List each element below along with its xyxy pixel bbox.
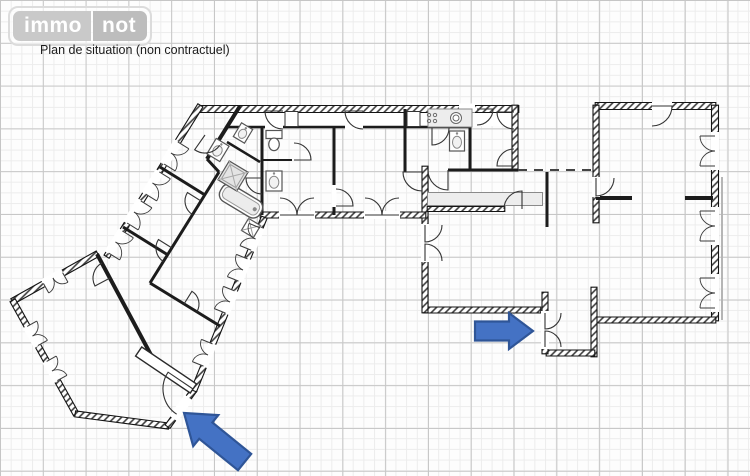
interior-wall	[97, 254, 158, 368]
door-swing	[403, 172, 422, 191]
door-swing	[294, 143, 311, 160]
interior-wall	[150, 283, 220, 326]
wc-fixture	[266, 131, 282, 151]
exterior-wall	[423, 307, 541, 313]
door-swing	[432, 128, 449, 145]
bathtub-fixture	[216, 181, 265, 221]
immonot-logo: immonot	[8, 6, 152, 46]
exterior-wall	[546, 350, 595, 356]
sink-fixture	[450, 131, 465, 151]
interior-wall	[150, 172, 219, 283]
floorplan-drawing	[0, 0, 750, 476]
exterior-wall	[512, 105, 518, 171]
interior-wall	[207, 159, 219, 172]
exterior-wall	[591, 287, 597, 357]
logo-immo-text: immo	[13, 11, 91, 41]
door-swing	[246, 178, 262, 194]
exterior-wall	[10, 299, 79, 416]
sink-fixture	[207, 138, 229, 161]
plan-fixtures	[136, 109, 543, 393]
doorleaf-fixture	[136, 347, 197, 393]
exterior-wall	[593, 105, 599, 223]
plan-walls	[10, 103, 719, 430]
exterior-wall	[427, 207, 505, 212]
plan-windows	[27, 136, 715, 381]
plan-caption: Plan de situation (non contractuel)	[40, 43, 230, 57]
floorplan-page: immonot Plan de situation (non contractu…	[0, 0, 750, 476]
ksink-fixture	[451, 113, 462, 124]
plan-entrance-arrows	[184, 313, 533, 470]
box-fixture	[285, 112, 298, 127]
entrance-arrow-left	[184, 413, 251, 470]
entrance-arrow-right	[475, 313, 533, 349]
logo-not-text: not	[93, 11, 147, 41]
door-swing	[428, 170, 448, 190]
interior-wall	[227, 142, 260, 162]
wall-opening	[332, 185, 337, 207]
sink-fixture	[266, 171, 282, 191]
box-fixture	[407, 112, 420, 127]
interior-wall	[160, 167, 205, 195]
exterior-wall	[75, 411, 169, 429]
plan-wall-openings	[23, 102, 719, 421]
plan-doors	[93, 106, 672, 414]
door-swing	[336, 189, 353, 206]
exterior-wall	[595, 317, 716, 323]
counter-fixture	[428, 193, 543, 206]
